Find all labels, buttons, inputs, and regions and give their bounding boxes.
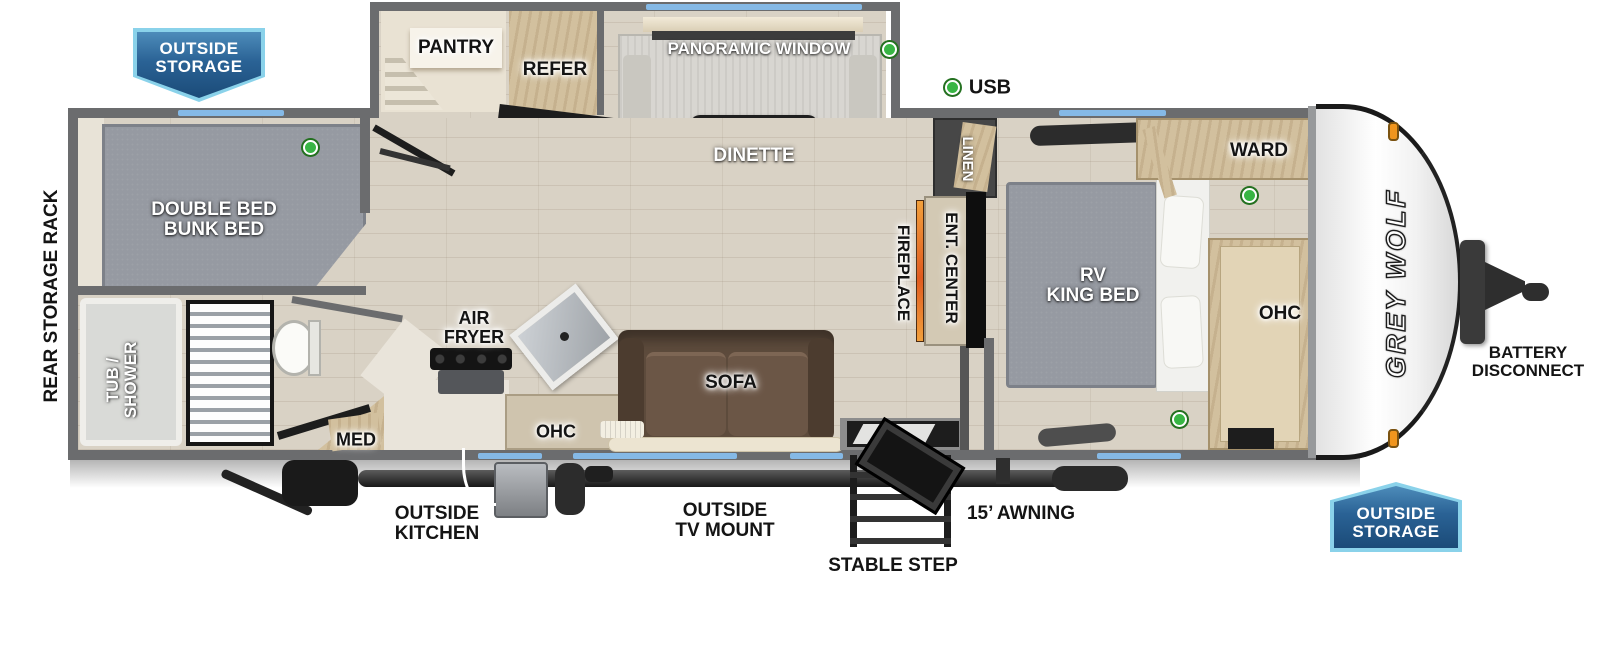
awning-arm bbox=[1052, 466, 1128, 491]
usb-legend-dot bbox=[945, 80, 960, 95]
sofa-cushion-right bbox=[728, 352, 808, 436]
bunk-bath-divider bbox=[68, 286, 366, 295]
ward-label: WARD bbox=[1230, 141, 1288, 161]
sofa-arm-right bbox=[808, 338, 834, 440]
pantry-refer-divider bbox=[597, 11, 604, 115]
sofa-label: SOFA bbox=[705, 373, 757, 393]
marker-light-top bbox=[1388, 122, 1399, 141]
air-line2: FRYER bbox=[444, 328, 504, 347]
ent-center-label: ENT. CENTER bbox=[942, 212, 960, 323]
bedroom-divider-wall bbox=[984, 338, 994, 452]
bedroom-top-window bbox=[1059, 110, 1166, 116]
ok-line2: KITCHEN bbox=[395, 524, 479, 544]
wall-left bbox=[68, 108, 78, 460]
floorplan-canvas: GREY WOLF OUTSIDE STORAGE OUTSIDE STORAG… bbox=[0, 0, 1600, 669]
stove bbox=[430, 348, 512, 370]
slideout-wall-left bbox=[370, 2, 379, 118]
outside-storage-badge-top: OUTSIDE STORAGE bbox=[133, 28, 265, 102]
tub-line2: SHOWER bbox=[122, 342, 140, 419]
badge-line2: STORAGE bbox=[1352, 523, 1439, 541]
badge-line1: OUTSIDE bbox=[1356, 505, 1435, 523]
badge-text: OUTSIDE STORAGE bbox=[133, 28, 265, 102]
rv-king-bed-label: RV KING BED bbox=[1047, 266, 1140, 306]
usb-dot-bunkroom bbox=[303, 140, 318, 155]
fireplace-strip bbox=[916, 200, 924, 342]
linen-label: LINEN bbox=[959, 137, 975, 182]
bedroom-bottom-window bbox=[1097, 453, 1181, 459]
pantry-label: PANTRY bbox=[418, 38, 494, 58]
usb-dot-dinette bbox=[882, 42, 897, 57]
entry-door-post bbox=[960, 345, 969, 450]
usb-dot-bed-foot bbox=[1172, 412, 1187, 427]
batt-line1: BATTERY bbox=[1472, 344, 1584, 362]
dinette-slide-window bbox=[646, 4, 862, 10]
bedroom-ohc-label: OHC bbox=[1259, 304, 1301, 324]
king-line2: KING BED bbox=[1047, 286, 1140, 306]
outside-tv-mount-label: OUTSIDE TV MOUNT bbox=[675, 501, 774, 541]
double-bunk-label: DOUBLE BED BUNK BED bbox=[151, 200, 277, 240]
bed-pillow-1 bbox=[1160, 195, 1205, 270]
bed-valance bbox=[1030, 122, 1153, 146]
kitchen-ohc-label: OHC bbox=[536, 423, 576, 442]
sofa-cushion-left bbox=[646, 352, 726, 436]
bunk-line1: DOUBLE BED bbox=[151, 200, 277, 220]
sofa-bottom-window-2 bbox=[790, 453, 843, 459]
brand-logo: GREY WOLF bbox=[1382, 188, 1410, 378]
tub-shower-label: TUB / SHOWER bbox=[104, 342, 140, 419]
stable-step-rung-4 bbox=[850, 538, 951, 544]
air-line1: AIR bbox=[444, 309, 504, 328]
bunkroom-window bbox=[178, 110, 284, 116]
sofa-ledge bbox=[608, 437, 844, 452]
awning-label: 15’ AWNING bbox=[967, 504, 1075, 524]
outside-storage-badge-bottom: OUTSIDE STORAGE bbox=[1330, 482, 1462, 552]
usb-legend-label: USB bbox=[969, 78, 1011, 99]
badge-line1: OUTSIDE bbox=[159, 40, 238, 58]
sofa-bottom-window-1 bbox=[573, 453, 737, 459]
dinette-label: DINETTE bbox=[713, 146, 794, 166]
sink-drain bbox=[560, 332, 569, 341]
tv-line2: TV MOUNT bbox=[675, 521, 774, 541]
badge-line2: STORAGE bbox=[155, 58, 242, 76]
bed-pillow-2 bbox=[1160, 295, 1204, 369]
ok-line1: OUTSIDE bbox=[395, 504, 479, 524]
bunkroom-wall-finish bbox=[78, 118, 104, 290]
stable-step-rail-left bbox=[850, 455, 857, 547]
ent-center-tv bbox=[966, 192, 986, 348]
air-fryer-label: AIR FRYER bbox=[444, 309, 504, 347]
outside-kitchen-cord bbox=[462, 448, 496, 506]
bunkroom-right-wall bbox=[360, 118, 370, 213]
outside-kitchen-label: OUTSIDE KITCHEN bbox=[395, 504, 479, 544]
bedroom-corner-item bbox=[1228, 428, 1274, 449]
king-line1: RV bbox=[1047, 266, 1140, 286]
marker-light-bottom bbox=[1388, 429, 1399, 448]
hitch-ball bbox=[1522, 283, 1549, 301]
stove-body bbox=[438, 370, 504, 394]
hitch-triangle bbox=[1485, 262, 1525, 310]
fireplace-label: FIREPLACE bbox=[894, 225, 912, 321]
usb-dot-wardrobe bbox=[1242, 188, 1257, 203]
refer-label: REFER bbox=[523, 60, 587, 80]
batt-line2: DISCONNECT bbox=[1472, 362, 1584, 380]
outside-kitchen-tank bbox=[555, 463, 585, 515]
toilet-tank bbox=[308, 320, 321, 376]
dinette-valance bbox=[643, 17, 863, 32]
tub-line1: TUB / bbox=[104, 342, 122, 419]
stable-step-label: STABLE STEP bbox=[828, 556, 958, 576]
tv-line1: OUTSIDE bbox=[675, 501, 774, 521]
med-label: MED bbox=[336, 431, 376, 450]
slideout-wall-right bbox=[891, 2, 900, 118]
rear-storage-rack-label: REAR STORAGE RACK bbox=[42, 190, 62, 403]
awning-leg bbox=[996, 458, 1010, 484]
bedroom-ohc-door bbox=[1220, 246, 1300, 442]
outside-kitchen-griddle bbox=[494, 462, 548, 518]
battery-disconnect-label: BATTERY DISCONNECT bbox=[1472, 344, 1584, 380]
hitch-plate bbox=[1460, 240, 1485, 344]
stable-step-rung-3 bbox=[850, 516, 951, 522]
tv-mount-knob bbox=[585, 466, 613, 482]
sofa-blanket bbox=[600, 421, 644, 438]
rear-bumper-pod bbox=[282, 460, 358, 506]
shower-door bbox=[186, 300, 274, 446]
badge-text: OUTSIDE STORAGE bbox=[1330, 482, 1462, 552]
panoramic-window-label: PANORAMIC WINDOW bbox=[668, 40, 851, 58]
bunk-line2: BUNK BED bbox=[151, 220, 277, 240]
